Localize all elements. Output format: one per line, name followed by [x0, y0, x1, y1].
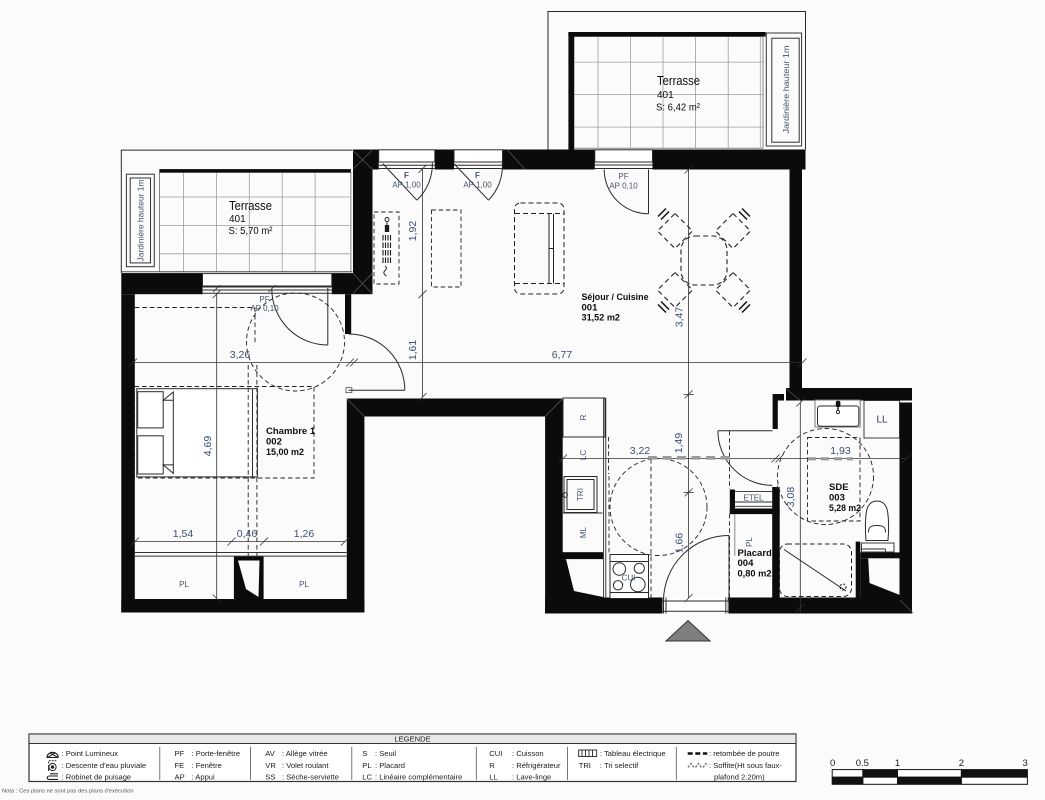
svg-text:S: 5,70 m²: S: 5,70 m² — [229, 226, 274, 237]
svg-text:0: 0 — [830, 758, 835, 769]
svg-text:SDE: SDE — [829, 482, 849, 493]
svg-text:LC: LC — [362, 773, 372, 782]
svg-text:1,61: 1,61 — [407, 340, 419, 361]
svg-text:002: 002 — [266, 437, 282, 448]
svg-text:31,52 m2: 31,52 m2 — [582, 313, 621, 324]
svg-text:: Placard: : Placard — [375, 761, 405, 770]
svg-text:003: 003 — [829, 493, 845, 504]
svg-text:: Tableau électrique: : Tableau électrique — [600, 749, 666, 758]
svg-text:: Volet roulant: : Volet roulant — [282, 761, 329, 770]
svg-text:R: R — [489, 761, 495, 770]
svg-text:R: R — [579, 414, 588, 420]
svg-text:1,93: 1,93 — [830, 445, 851, 457]
svg-text:: Allège vitrée: : Allège vitrée — [282, 749, 328, 758]
svg-text:401: 401 — [229, 214, 246, 225]
svg-text:1,66: 1,66 — [674, 533, 686, 554]
svg-text:3: 3 — [1023, 758, 1028, 769]
svg-text:: Soffite(Ht sous faux-: : Soffite(Ht sous faux- — [709, 761, 782, 770]
svg-text:3,08: 3,08 — [785, 487, 797, 508]
svg-text:Jardinière hauteur 1m: Jardinière hauteur 1m — [782, 45, 791, 133]
svg-text:: retombée de poutre: : retombée de poutre — [709, 749, 780, 758]
svg-text:5,28 m2: 5,28 m2 — [829, 503, 861, 514]
svg-text:3,26: 3,26 — [230, 349, 251, 361]
svg-text:AV: AV — [265, 749, 276, 758]
svg-text:6,77: 6,77 — [552, 349, 573, 361]
svg-text:004: 004 — [738, 558, 755, 569]
svg-text:: Porte-fenêtre: : Porte-fenêtre — [192, 749, 241, 758]
svg-text:: Sèche-serviette: : Sèche-serviette — [282, 773, 339, 782]
svg-text:Jardinière hauteur 1m: Jardinière hauteur 1m — [137, 179, 146, 261]
svg-text:PL: PL — [299, 580, 309, 589]
svg-text:F: F — [475, 171, 480, 180]
svg-text:1,92: 1,92 — [407, 221, 419, 242]
svg-text:2: 2 — [959, 758, 964, 769]
svg-text:: Descente d'eau pluviale: : Descente d'eau pluviale — [62, 761, 147, 770]
svg-text:Séjour / Cuisine: Séjour / Cuisine — [582, 292, 649, 303]
svg-text:3,47: 3,47 — [674, 307, 686, 328]
svg-text:0,80 m2: 0,80 m2 — [738, 569, 772, 580]
svg-text:Terrasse: Terrasse — [229, 199, 272, 213]
svg-text:: Robinet de puisage: : Robinet de puisage — [62, 773, 132, 782]
svg-text:1,54: 1,54 — [173, 528, 194, 540]
svg-text:AP 0,10: AP 0,10 — [609, 182, 638, 191]
svg-text:CUI: CUI — [489, 749, 502, 758]
svg-text:LL: LL — [876, 415, 888, 426]
svg-text:ML: ML — [579, 526, 588, 538]
svg-text:PF: PF — [175, 749, 185, 758]
svg-text:: Lave-linge: : Lave-linge — [512, 773, 551, 782]
svg-text:: Seuil: : Seuil — [375, 749, 396, 758]
svg-text:LL: LL — [489, 773, 497, 782]
svg-text:: Cuisson: : Cuisson — [512, 749, 544, 758]
svg-text:3,22: 3,22 — [630, 445, 651, 457]
svg-text:PL: PL — [179, 580, 189, 589]
svg-text:SS: SS — [265, 773, 275, 782]
svg-text:1: 1 — [895, 758, 900, 769]
svg-text:S: S — [362, 749, 367, 758]
svg-text:PL: PL — [362, 761, 371, 770]
svg-text:Nota : Ces plans ne sont pas d: Nota : Ces plans ne sont pas des plans d… — [2, 789, 134, 795]
svg-text:1,26: 1,26 — [294, 528, 315, 540]
svg-text:CUI: CUI — [622, 574, 636, 583]
svg-text:: Linéaire complémentaire: : Linéaire complémentaire — [375, 773, 462, 782]
svg-text:VR: VR — [265, 761, 276, 770]
svg-text:: Réfrigérateur: : Réfrigérateur — [512, 761, 561, 770]
svg-text:plafond 2.20m): plafond 2.20m) — [714, 773, 765, 782]
svg-text:ETEL: ETEL — [743, 494, 764, 503]
svg-text:4,69: 4,69 — [202, 436, 214, 457]
svg-text:: Appui: : Appui — [192, 773, 216, 782]
svg-text:0,46: 0,46 — [237, 528, 258, 540]
svg-text:F: F — [404, 171, 409, 180]
svg-text:PF: PF — [618, 172, 628, 181]
svg-text:TRI: TRI — [576, 488, 585, 501]
svg-text:: Point Lumineux: : Point Lumineux — [62, 749, 119, 758]
svg-text:Chambre 1: Chambre 1 — [266, 426, 316, 437]
svg-text:FE: FE — [175, 761, 185, 770]
svg-text:TRI: TRI — [579, 761, 591, 770]
svg-text:: Tri selectif: : Tri selectif — [600, 761, 639, 770]
svg-text:1,49: 1,49 — [673, 433, 685, 454]
svg-text:AP 1,00: AP 1,00 — [392, 181, 421, 190]
svg-text:Terrasse: Terrasse — [657, 74, 700, 88]
svg-text:LEGENDE: LEGENDE — [394, 735, 430, 744]
svg-text:401: 401 — [657, 90, 674, 101]
svg-text:: Fenêtre: : Fenêtre — [192, 761, 222, 770]
svg-text:PF: PF — [259, 295, 269, 304]
svg-text:PL: PL — [745, 537, 754, 547]
svg-text:AP: AP — [175, 773, 185, 782]
svg-text:AP 1,00: AP 1,00 — [463, 181, 492, 190]
svg-text:0.5: 0.5 — [856, 758, 869, 769]
svg-text:S: 6,42 m²: S: 6,42 m² — [656, 103, 701, 114]
svg-text:15,00 m2: 15,00 m2 — [266, 447, 304, 458]
